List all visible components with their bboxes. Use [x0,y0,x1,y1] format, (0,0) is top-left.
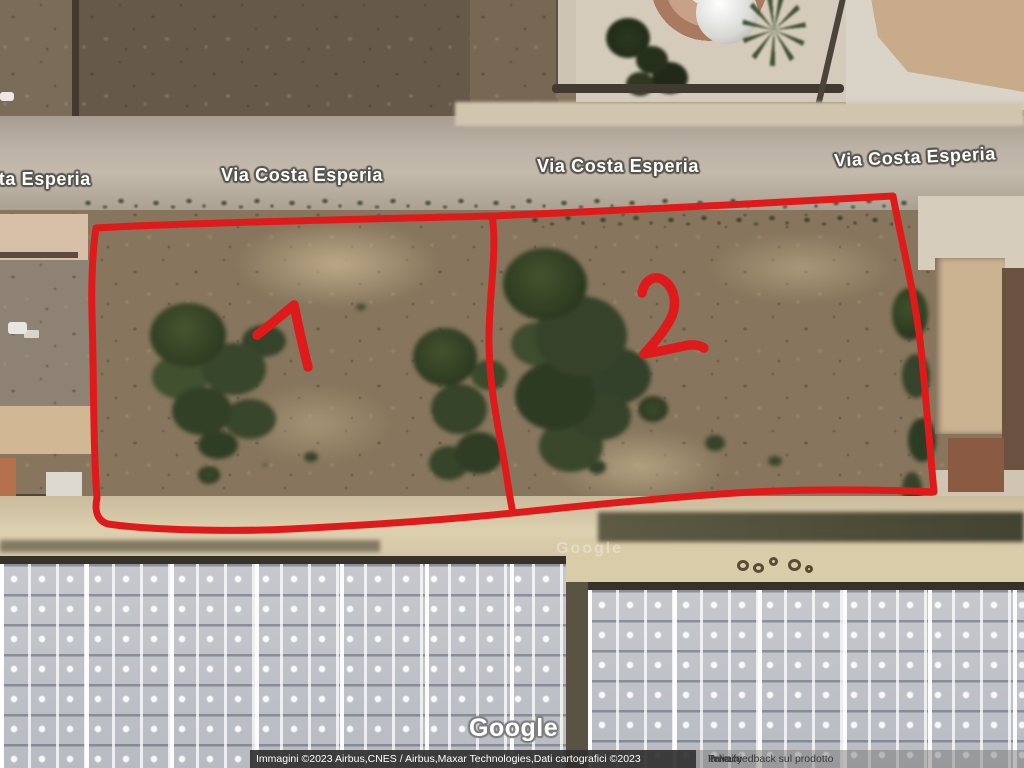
imagery-attribution: Immagini ©2023 Airbus,CNES / Airbus,Maxa… [250,750,696,768]
terrain-sand-patch [552,428,727,506]
terrain-sand-patch [238,383,393,465]
terrain-dirt-top [470,0,558,112]
hedge-shadow [598,512,1024,542]
parked-car [0,92,14,101]
building-roof [1002,268,1024,470]
terrain-sand-patch [235,220,440,308]
building-roof [935,258,1005,434]
round-tank [737,560,749,571]
bushes [198,466,220,484]
bush-row [525,211,893,235]
terrain-dirt-top-left [0,0,76,122]
hedge-shadow [0,540,380,552]
ghost-watermark: Google [556,540,623,558]
google-logo[interactable]: Google [469,714,558,743]
greenhouse-block-right [588,582,1024,768]
greenhouse-lane [566,582,588,768]
attribution-links: Italia Termini Privacy Invia feedback su… [696,750,1024,768]
tree-cluster [503,248,587,320]
tree-cluster [892,288,928,340]
building-roof [0,406,96,454]
tree-cluster [150,303,226,367]
bushes [638,396,668,422]
terrain-dirt-top [79,0,472,118]
street-label: Via Costa Esperia [221,165,383,186]
bushes [606,18,650,58]
building-roof [948,438,1004,492]
road-shoulder [455,102,1024,126]
street-label: Via Costa Esperia [537,156,699,177]
round-tank [769,557,778,566]
street-label: Costa Esperia [0,169,91,190]
round-tank [753,563,764,573]
roadside-vegetation [78,194,940,212]
terrain-sand-patch [708,232,893,304]
round-tank [788,559,801,571]
tree-cluster [413,328,477,386]
wall [556,0,578,92]
wall-shadow [0,252,78,258]
wall-shadow [552,84,844,93]
google-maps-satellite-view[interactable]: Google Costa Esperia Via Costa Esperia V… [0,0,1024,768]
link-feedback[interactable]: Invia feedback sul prodotto [708,753,834,765]
parked-car [8,322,27,334]
